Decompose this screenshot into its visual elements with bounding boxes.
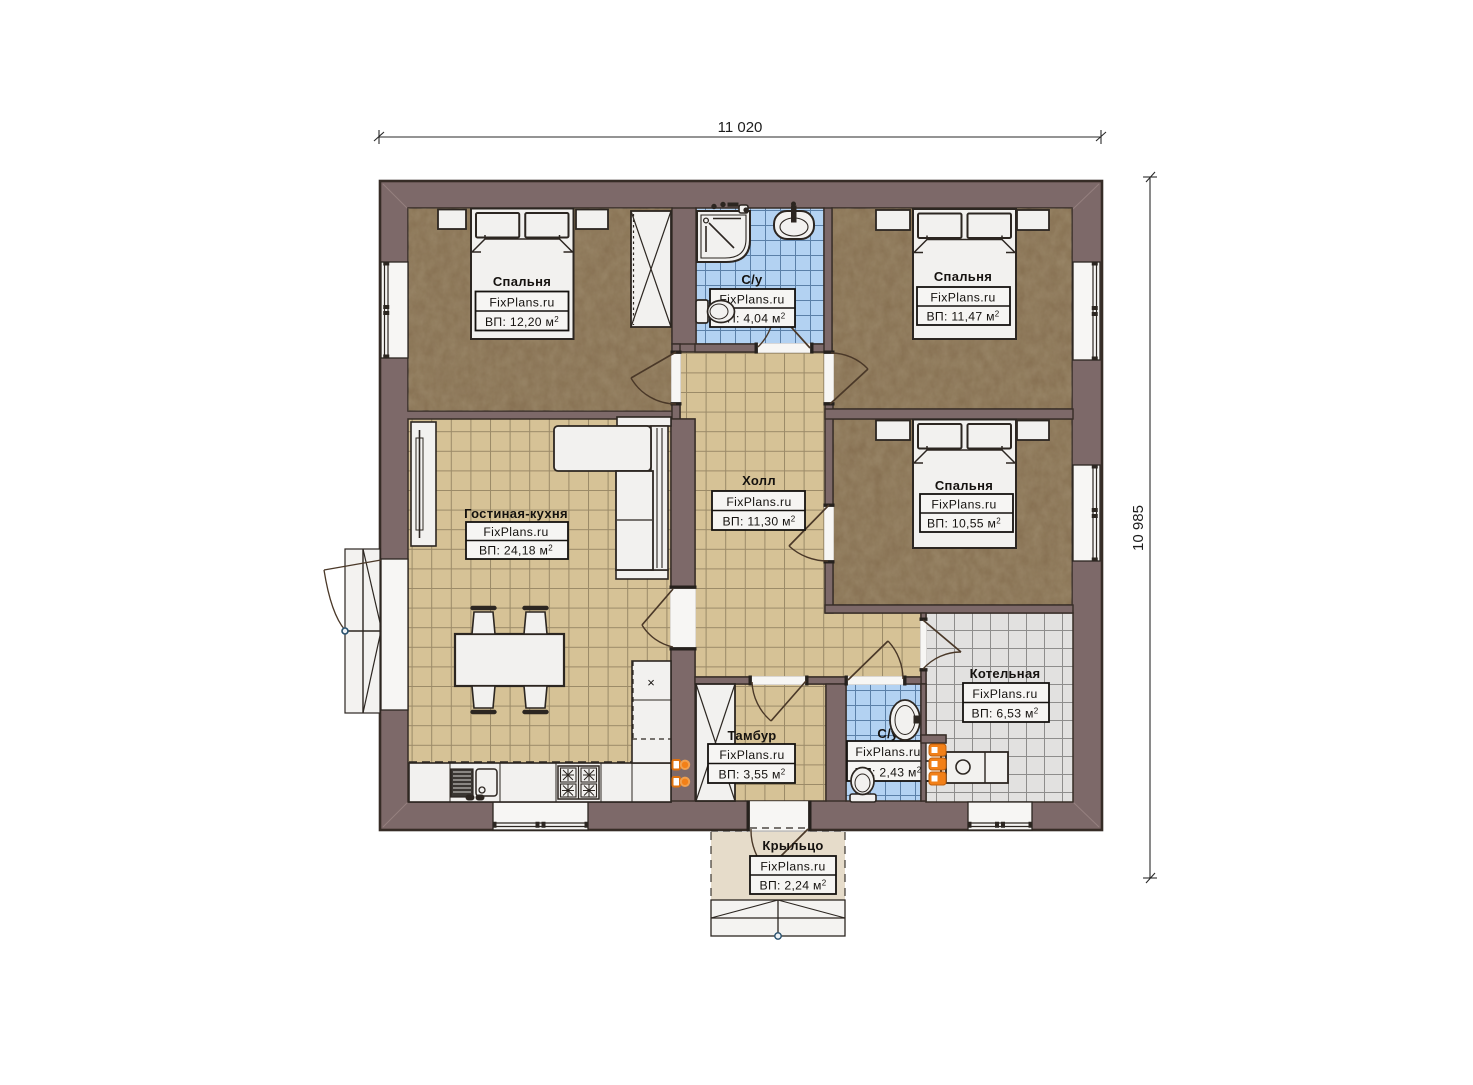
svg-text:ВП: 11,30 м2: ВП: 11,30 м2 <box>722 515 795 529</box>
svg-text:10 985: 10 985 <box>1130 505 1147 551</box>
svg-text:FixPlans.ru: FixPlans.ru <box>930 290 995 304</box>
svg-text:Крыльцо: Крыльцо <box>762 838 823 853</box>
svg-text:FixPlans.ru: FixPlans.ru <box>855 745 920 759</box>
svg-text:ВП: 10,55 м2: ВП: 10,55 м2 <box>927 517 1001 531</box>
svg-text:ВП: 11,47 м2: ВП: 11,47 м2 <box>926 310 999 324</box>
svg-text:Спальня: Спальня <box>934 269 992 284</box>
svg-text:С/у: С/у <box>741 272 763 287</box>
svg-text:ВП: 12,20 м2: ВП: 12,20 м2 <box>485 315 559 329</box>
svg-text:Спальня: Спальня <box>935 478 993 493</box>
svg-text:FixPlans.ru: FixPlans.ru <box>972 687 1037 701</box>
svg-text:Тамбур: Тамбур <box>728 728 777 743</box>
svg-text:Спальня: Спальня <box>493 274 551 289</box>
svg-text:Гостиная-кухня: Гостиная-кухня <box>464 506 568 521</box>
svg-text:FixPlans.ru: FixPlans.ru <box>489 295 554 309</box>
svg-text:FixPlans.ru: FixPlans.ru <box>483 525 548 539</box>
svg-text:ВП: 24,18 м2: ВП: 24,18 м2 <box>479 544 553 558</box>
svg-text:ВП: 3,55 м2: ВП: 3,55 м2 <box>719 768 786 782</box>
svg-text:FixPlans.ru: FixPlans.ru <box>931 497 996 511</box>
svg-text:FixPlans.ru: FixPlans.ru <box>760 859 825 873</box>
svg-text:Котельная: Котельная <box>970 666 1041 681</box>
svg-text:Холл: Холл <box>742 473 776 488</box>
svg-text:FixPlans.ru: FixPlans.ru <box>726 495 791 509</box>
svg-text:FixPlans.ru: FixPlans.ru <box>719 748 784 762</box>
svg-text:ВП: 6,53 м2: ВП: 6,53 м2 <box>972 707 1039 721</box>
svg-text:11 020: 11 020 <box>718 119 763 136</box>
svg-text:×: × <box>647 675 655 690</box>
svg-text:ВП: 2,24 м2: ВП: 2,24 м2 <box>760 879 827 893</box>
